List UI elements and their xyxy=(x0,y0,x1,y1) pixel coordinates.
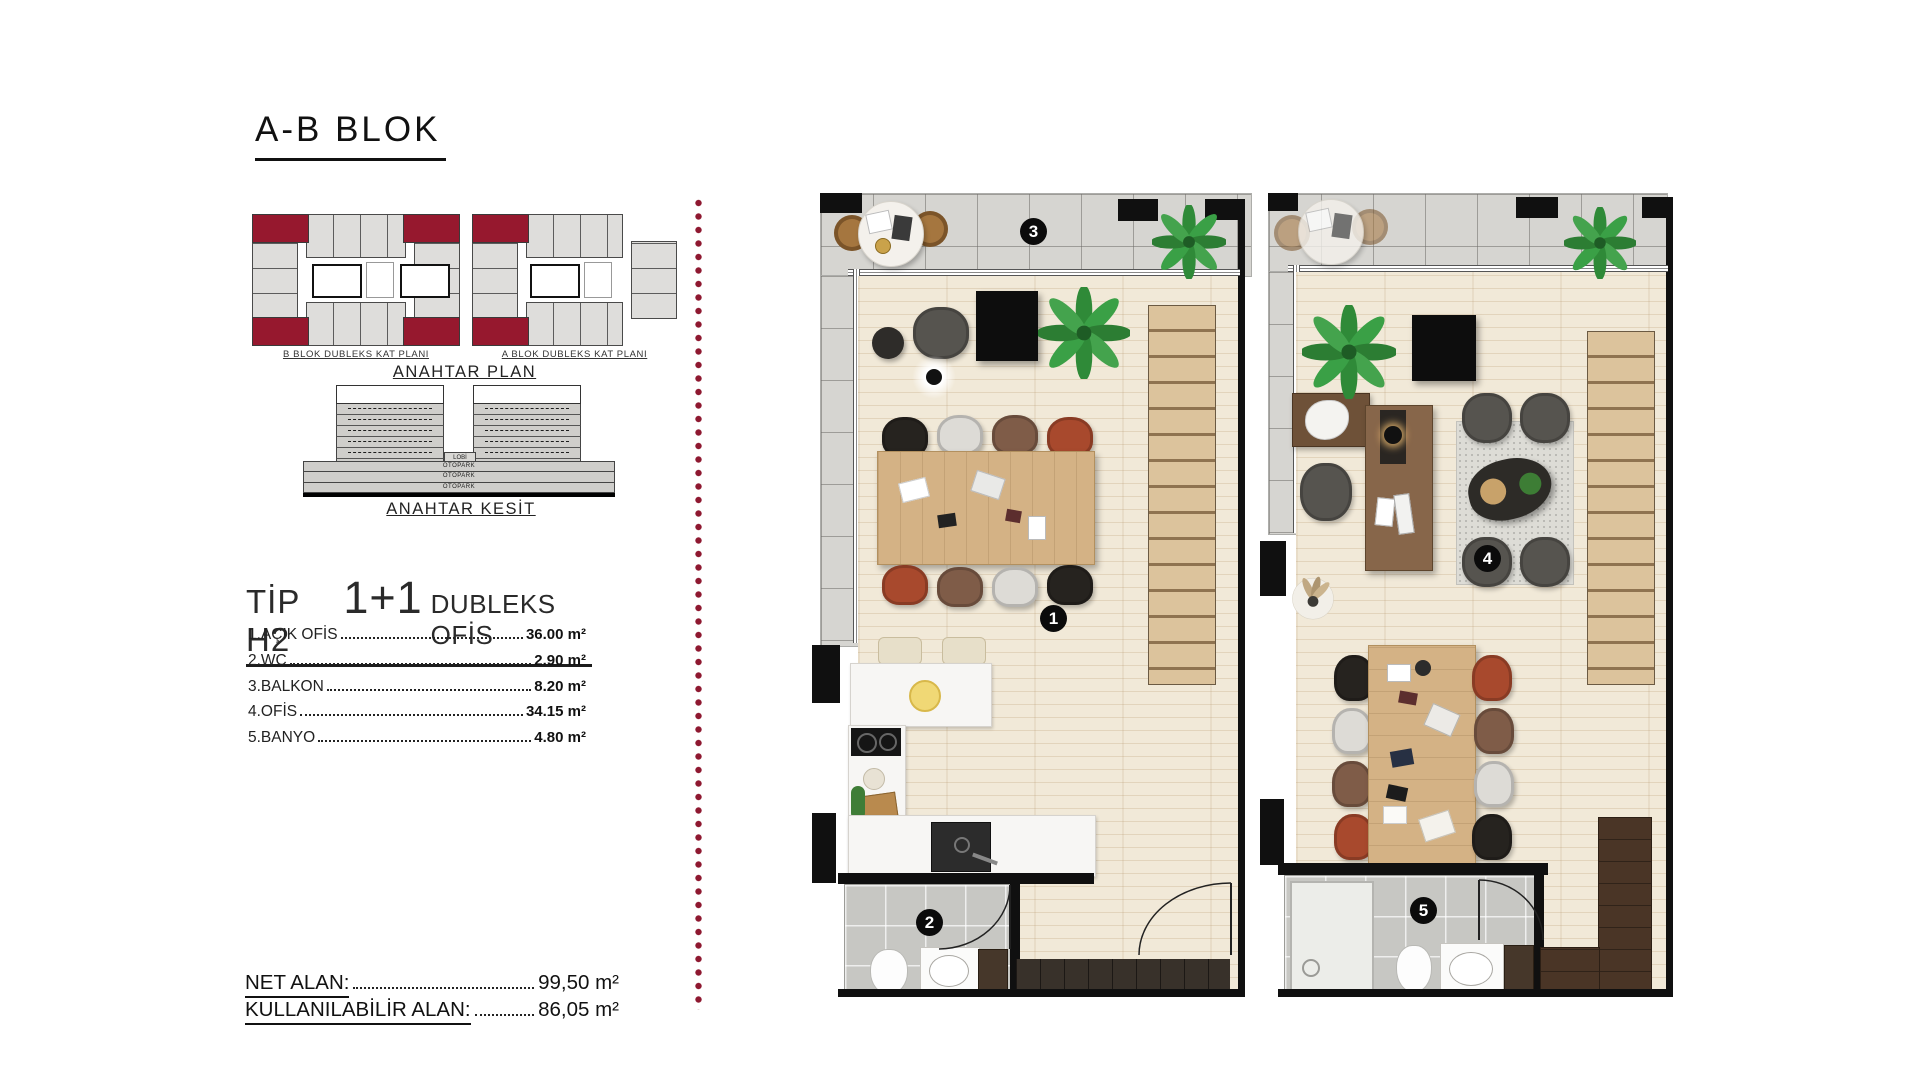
wall-segment xyxy=(1278,863,1548,875)
highlight-unit-block xyxy=(403,214,460,243)
wardrobe xyxy=(1540,947,1600,995)
entrance-door-arc xyxy=(1138,881,1232,957)
section-tower-b xyxy=(336,385,444,470)
notebook xyxy=(1005,509,1022,523)
chair xyxy=(882,565,928,605)
room-area: 2.90 m² xyxy=(534,652,586,669)
notepad xyxy=(1387,664,1411,682)
tablet xyxy=(937,513,957,528)
wall-segment xyxy=(838,873,1094,884)
section-floor xyxy=(336,448,444,459)
drain xyxy=(954,837,970,853)
phone xyxy=(1386,784,1408,802)
chair xyxy=(1474,761,1514,807)
key-plan-cells-top xyxy=(526,214,623,258)
wood-tray xyxy=(1478,476,1509,507)
floor-plan-upper: 4 5 xyxy=(1268,193,1686,1026)
room-marker-balcony: 3 xyxy=(1020,218,1047,245)
dotted-leader xyxy=(327,689,531,691)
wall-right xyxy=(1666,197,1673,993)
highlight-unit-block xyxy=(403,317,460,346)
lounge-armchair xyxy=(1520,537,1570,587)
chair xyxy=(1474,708,1514,754)
wall-segment xyxy=(812,813,836,883)
usable-area-row: KULLANILABİLİR ALAN: 86,05 m² xyxy=(245,998,619,1025)
plant-icon xyxy=(1152,205,1226,279)
room-marker-bathroom: 5 xyxy=(1410,897,1437,924)
wall-segment xyxy=(1260,799,1284,865)
papers xyxy=(898,477,930,503)
list-item: 1.AÇIK OFİS 36.00 m² xyxy=(248,626,586,652)
desk-item xyxy=(1415,660,1431,676)
room-name: 2.WC xyxy=(248,652,287,670)
section-tower-a xyxy=(473,385,581,470)
section-floor xyxy=(473,426,581,437)
plate xyxy=(875,238,891,254)
dotted-leader xyxy=(341,637,523,639)
core-shaft xyxy=(584,262,612,298)
wash-basin xyxy=(929,955,969,987)
chair xyxy=(992,567,1038,607)
chair xyxy=(992,415,1038,455)
dotted-leader xyxy=(290,663,532,665)
list-item: 5.BANYO 4.80 m² xyxy=(248,729,586,755)
section-floor xyxy=(473,404,581,415)
chair xyxy=(1047,565,1093,605)
dried-plant-icon xyxy=(1286,569,1340,623)
sink-vanity xyxy=(1440,943,1504,993)
sheet: A-B BLOK B BLOK DUBLEKS KAT PLANI A BLOK… xyxy=(0,0,1921,1081)
section-floor xyxy=(336,437,444,448)
dotted-leader xyxy=(300,714,523,716)
room-marker-open-office: 1 xyxy=(1040,605,1067,632)
room-area-list: 1.AÇIK OFİS 36.00 m² 2.WC 2.90 m² 3.BALK… xyxy=(248,626,586,755)
section-base-line xyxy=(303,493,615,497)
wall-right xyxy=(1238,199,1245,993)
room-area: 4.80 m² xyxy=(534,729,586,746)
magazine xyxy=(865,210,893,235)
room-name: 4.OFİS xyxy=(248,703,297,721)
usable-area-value: 86,05 m² xyxy=(538,998,619,1022)
chair xyxy=(1332,761,1372,807)
meeting-table xyxy=(1368,645,1476,869)
book xyxy=(1398,691,1418,706)
conference-table xyxy=(877,451,1095,565)
highlight-unit-block xyxy=(252,317,309,346)
net-area-row: NET ALAN: 99,50 m² xyxy=(245,971,619,998)
office-chair xyxy=(1300,463,1352,521)
papers xyxy=(1383,806,1407,824)
section-floor xyxy=(473,415,581,426)
key-plan-cells-left xyxy=(472,241,518,319)
decor-sculpture xyxy=(1305,400,1349,440)
chair xyxy=(1472,814,1512,860)
door-arc xyxy=(1478,879,1544,941)
section-floor xyxy=(336,426,444,437)
side-table xyxy=(872,327,904,359)
dotted-leader xyxy=(475,1014,534,1016)
key-plan-cells-bottom xyxy=(526,302,623,346)
office-desk xyxy=(1365,405,1433,571)
section-podium: OTOPARK OTOPARK OTOPARK xyxy=(303,462,615,497)
kitchen-island xyxy=(848,815,1096,877)
wall-bottom xyxy=(1278,989,1673,997)
lounge-armchair xyxy=(1520,393,1570,443)
net-area-label: NET ALAN: xyxy=(245,971,349,998)
bowl xyxy=(863,768,885,790)
section-roof xyxy=(336,385,444,404)
key-plan-cells-bottom xyxy=(306,302,406,346)
wash-basin xyxy=(1449,952,1493,986)
area-totals: NET ALAN: 99,50 m² KULLANILABİLİR ALAN: … xyxy=(245,971,619,1025)
dotted-leader xyxy=(318,740,531,742)
key-plan-cells-left xyxy=(252,241,298,319)
wall-segment xyxy=(820,193,862,213)
tray xyxy=(1331,213,1352,239)
key-plan-heading: ANAHTAR PLAN xyxy=(252,363,677,382)
fruit-bowl xyxy=(909,680,941,712)
page-title: A-B BLOK xyxy=(255,110,446,161)
desk-lamp xyxy=(1384,426,1402,444)
bathroom-cabinet xyxy=(1504,945,1534,993)
tablet xyxy=(1390,748,1414,768)
section-floor xyxy=(473,437,581,448)
wardrobe xyxy=(1598,817,1652,995)
wall-bottom xyxy=(838,989,1245,997)
shower-tray xyxy=(1290,881,1374,993)
pan xyxy=(857,733,877,753)
armchair xyxy=(913,307,969,359)
chair xyxy=(937,567,983,607)
room-marker-wc: 2 xyxy=(916,909,943,936)
stairs xyxy=(1148,305,1216,685)
balcony-table xyxy=(858,201,924,267)
key-plan-b-label: B BLOK DUBLEKS KAT PLANI xyxy=(252,349,460,360)
unit-plus-label: 1+1 xyxy=(343,572,422,624)
section-parking-label: OTOPARK xyxy=(303,482,615,493)
stairs xyxy=(1587,331,1655,685)
wall-segment xyxy=(1260,541,1286,596)
bar-stool xyxy=(942,637,986,665)
plant-icon xyxy=(1564,207,1636,279)
documents xyxy=(1418,810,1456,843)
door-arc xyxy=(938,884,1012,950)
dotted-leader xyxy=(353,987,534,989)
core-shaft xyxy=(400,264,450,298)
highlight-unit-block xyxy=(472,214,529,243)
room-name: 3.BALKON xyxy=(248,678,324,696)
laptop xyxy=(970,470,1005,500)
room-name: 5.BANYO xyxy=(248,729,315,747)
fireplace-block xyxy=(976,291,1038,361)
laptop xyxy=(1423,703,1460,737)
shower-drain xyxy=(1302,959,1320,977)
key-plan-a-graphic xyxy=(472,214,677,346)
room-area: 36.00 m² xyxy=(526,626,586,643)
wall-segment xyxy=(1516,197,1558,218)
plant-icon xyxy=(1302,305,1396,399)
core-shaft xyxy=(366,262,394,298)
section-roof xyxy=(473,385,581,404)
entry-dark-floor xyxy=(1016,959,1230,993)
table-plant xyxy=(1517,471,1543,497)
fireplace-block xyxy=(1412,315,1476,381)
balcony-table xyxy=(1298,199,1364,265)
key-plan-a-label: A BLOK DUBLEKS KAT PLANI xyxy=(472,349,677,360)
list-item: 4.OFİS 34.15 m² xyxy=(248,703,586,729)
lounge-armchair xyxy=(1462,393,1512,443)
core-shaft xyxy=(530,264,580,298)
plant-icon xyxy=(1038,287,1130,379)
toilet xyxy=(1396,945,1432,993)
kitchen-sink xyxy=(931,822,991,872)
key-plan-cells-top xyxy=(306,214,406,258)
key-section-heading: ANAHTAR KESİT xyxy=(336,500,586,519)
tray xyxy=(891,215,912,241)
room-area: 8.20 m² xyxy=(534,678,586,695)
faucet xyxy=(972,853,998,866)
bar-stool xyxy=(878,637,922,665)
room-name: 1.AÇIK OFİS xyxy=(248,626,338,644)
highlight-unit-block xyxy=(472,317,529,346)
room-marker-office: 4 xyxy=(1474,545,1501,572)
desk-return xyxy=(1292,393,1370,447)
section-floor xyxy=(336,404,444,415)
key-plan-cells-right xyxy=(631,241,677,319)
pan xyxy=(879,733,897,751)
floor-plan-lower: 3 xyxy=(820,193,1250,1026)
kitchen-counter xyxy=(850,663,992,727)
dotted-separator xyxy=(694,198,703,1010)
room-area: 34.15 m² xyxy=(526,703,586,720)
magazine xyxy=(1305,208,1333,233)
chair xyxy=(937,415,983,455)
chair xyxy=(1332,708,1372,754)
net-area-value: 99,50 m² xyxy=(538,971,619,995)
list-item: 3.BALKON 8.20 m² xyxy=(248,678,586,704)
list-item: 2.WC 2.90 m² xyxy=(248,652,586,678)
notepad xyxy=(1028,516,1046,540)
highlight-unit-block xyxy=(252,214,309,243)
sink-vanity xyxy=(920,947,980,995)
section-floor xyxy=(473,448,581,459)
monitor xyxy=(1393,493,1414,535)
key-plan-b-graphic xyxy=(252,214,460,346)
section-floor xyxy=(336,415,444,426)
core-shaft xyxy=(312,264,362,298)
chair xyxy=(1472,655,1512,701)
keyboard xyxy=(1375,497,1396,527)
floor-lamp xyxy=(926,369,942,385)
wall-segment xyxy=(812,645,840,703)
wall-segment xyxy=(1268,193,1298,211)
usable-area-label: KULLANILABİLİR ALAN: xyxy=(245,998,471,1025)
